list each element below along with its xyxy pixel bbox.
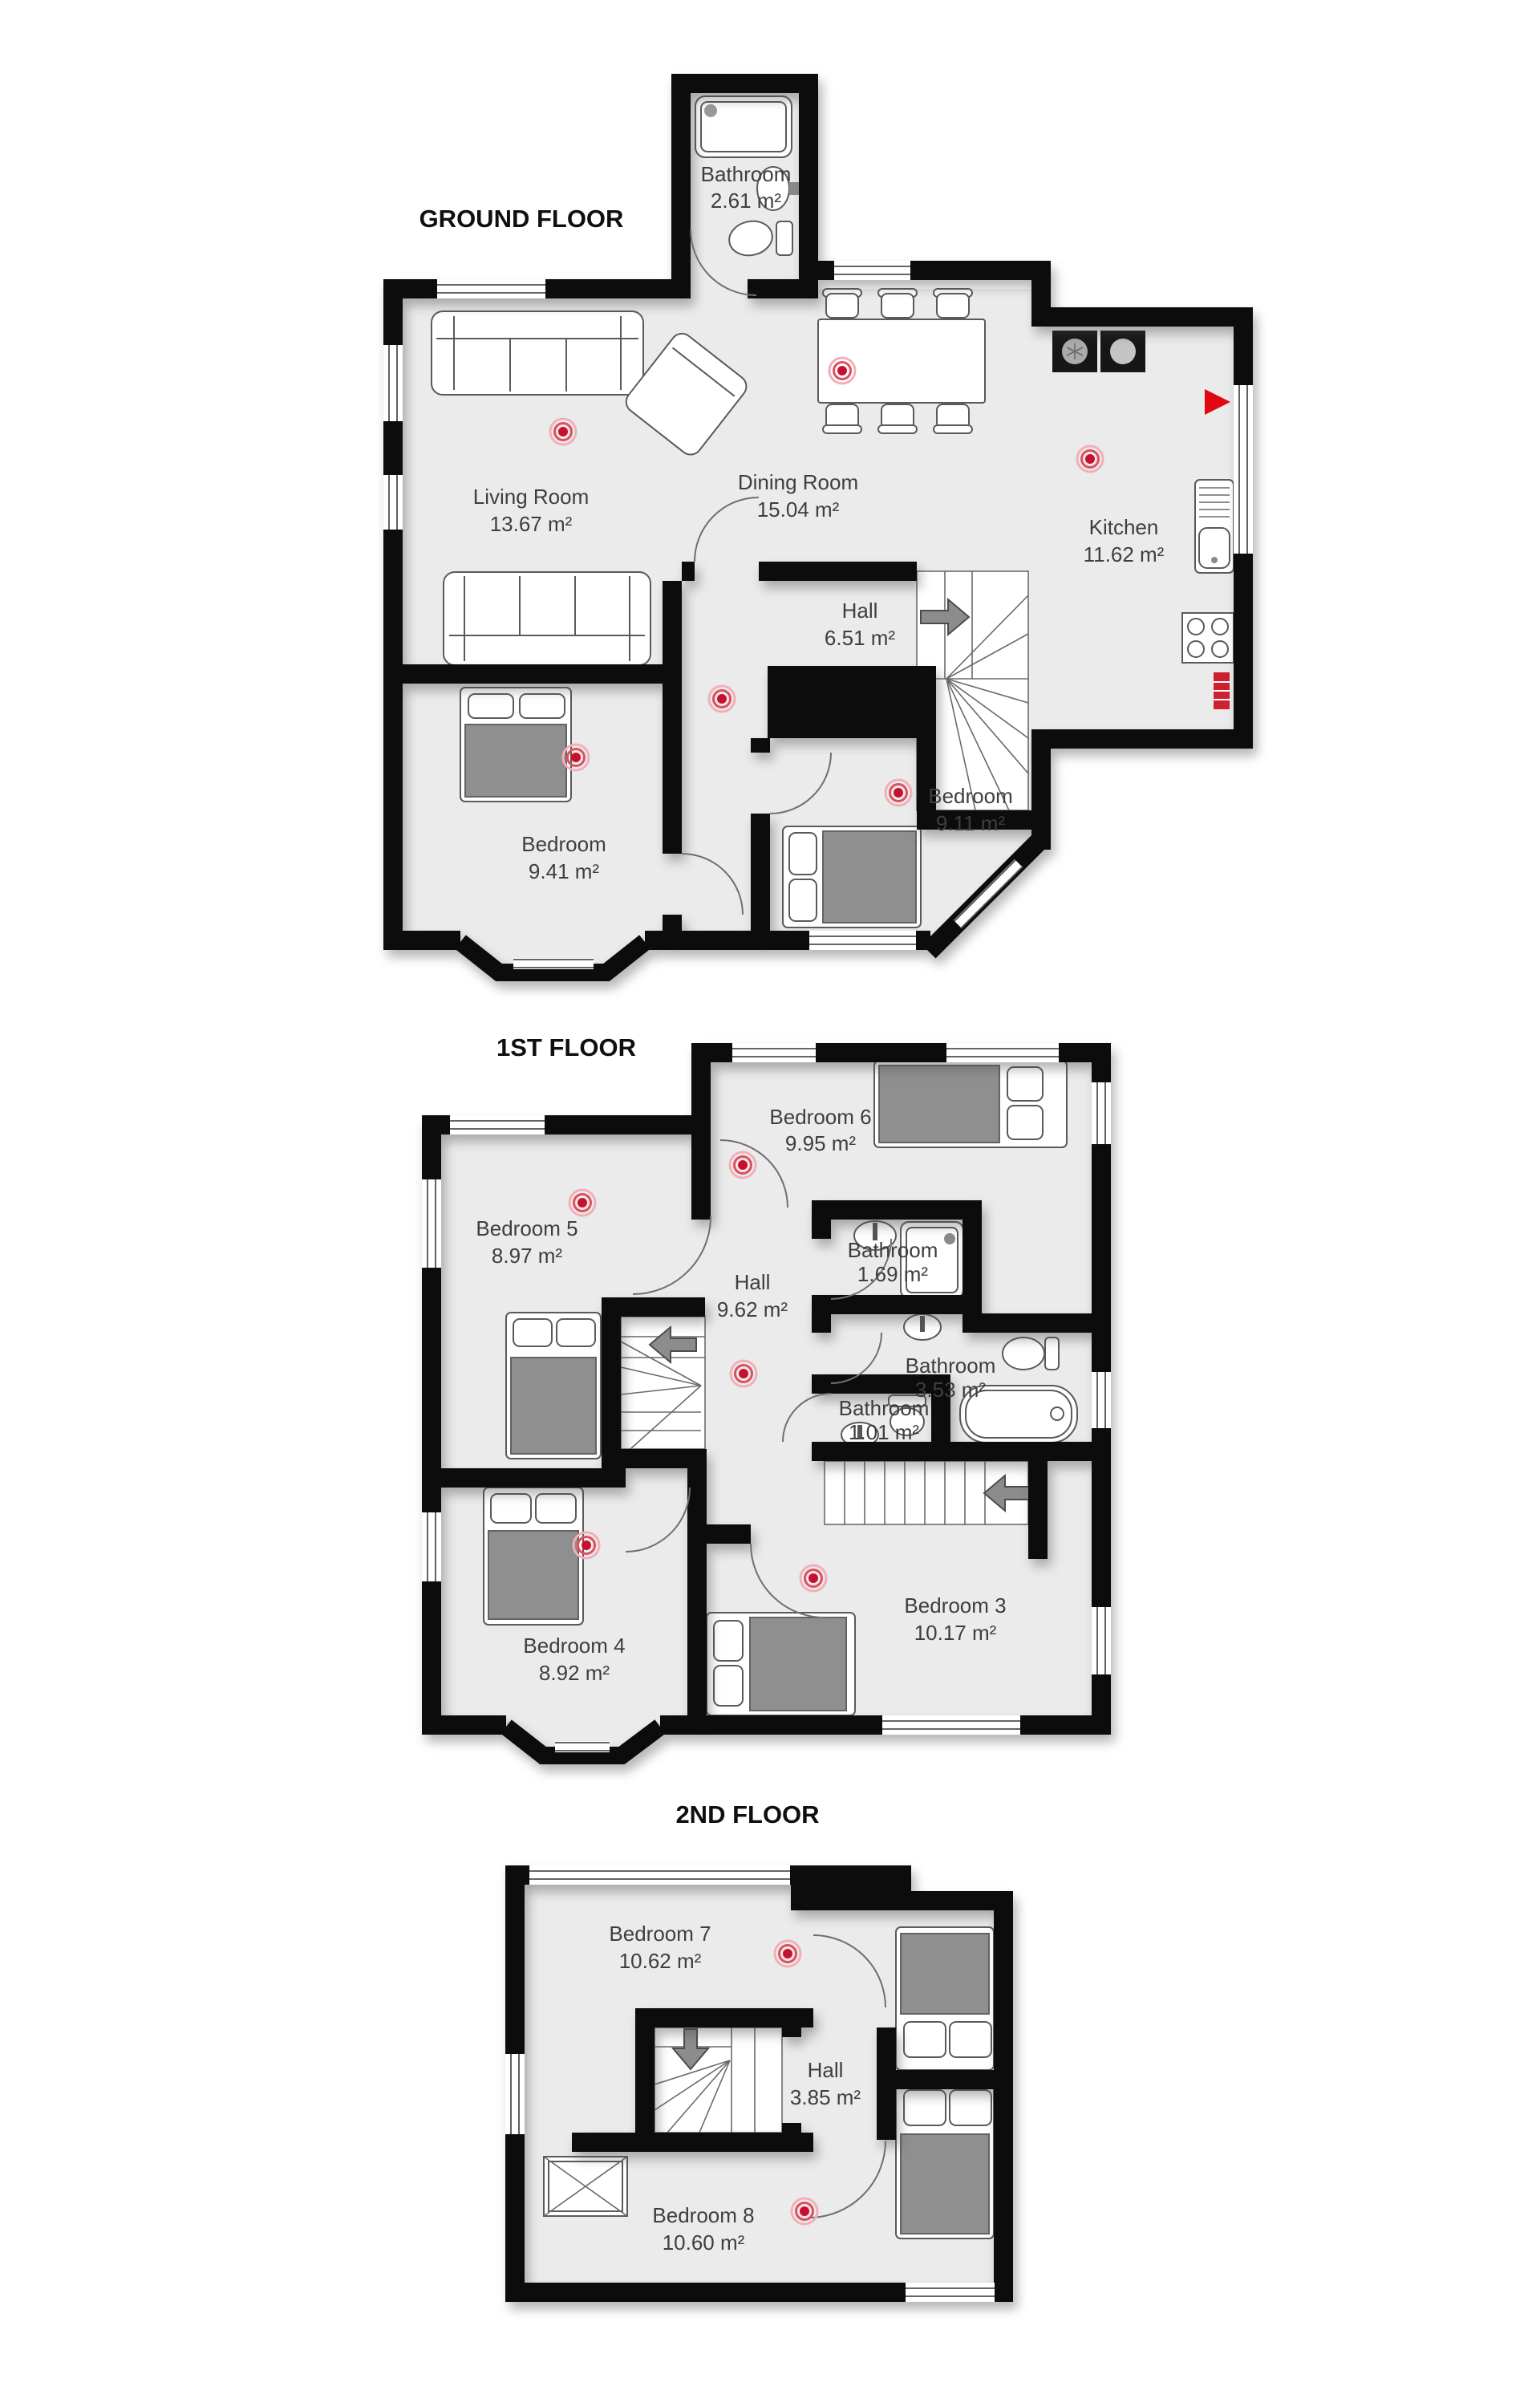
staircase-straight bbox=[825, 1461, 1031, 1524]
bed-right bbox=[783, 826, 921, 927]
bed-8 bbox=[896, 2082, 994, 2239]
skylight-icon bbox=[544, 2157, 627, 2216]
smoke-detector-icon bbox=[829, 358, 855, 384]
window bbox=[1092, 1372, 1111, 1428]
second-floor-title: 2ND FLOOR bbox=[675, 1800, 819, 1829]
window bbox=[422, 1179, 441, 1268]
room-label-bathroom-mid: Bathroom3.53 m² bbox=[906, 1354, 996, 1402]
window bbox=[529, 1865, 790, 1885]
room-label-bathroom-top: Bathroom1.69 m² bbox=[848, 1238, 938, 1286]
room-label-bathroom-small: Bathroom1.01 m² bbox=[839, 1396, 930, 1444]
window bbox=[1092, 1607, 1111, 1674]
window bbox=[437, 279, 545, 298]
bed-left bbox=[460, 688, 571, 802]
first-floor-title: 1ST FLOOR bbox=[496, 1033, 636, 1061]
window bbox=[383, 345, 403, 421]
sofa-bottom bbox=[444, 572, 650, 665]
staircase-winder bbox=[621, 1317, 705, 1449]
window bbox=[450, 1115, 545, 1134]
window bbox=[906, 2283, 995, 2302]
bed-4 bbox=[484, 1488, 583, 1625]
smoke-detector-icon bbox=[569, 1190, 595, 1216]
window bbox=[1234, 385, 1253, 554]
dining-table bbox=[818, 319, 985, 403]
window bbox=[946, 1043, 1059, 1062]
toilet-icon bbox=[1003, 1337, 1044, 1370]
ground-floor-plan: GROUND FLOOR Bathroom2.61 m² Living Room… bbox=[383, 74, 1253, 972]
second-floor-plan: 2ND FLOOR Bedroom 710.62 m² Hall3.85 m² … bbox=[505, 1800, 1013, 2302]
radiator bbox=[1214, 672, 1230, 709]
kitchen-sink-icon bbox=[1195, 480, 1234, 573]
first-floor-plan: 1ST FLOOR Bedroom 69.95 m² Bedroom 58.97… bbox=[422, 1033, 1111, 1756]
smoke-detector-icon bbox=[885, 780, 911, 806]
bed-5 bbox=[506, 1313, 601, 1459]
smoke-detector-icon bbox=[1077, 446, 1103, 472]
window bbox=[383, 475, 403, 530]
floor-plan-page: GROUND FLOOR Bathroom2.61 m² Living Room… bbox=[0, 0, 1540, 2407]
smoke-detector-icon bbox=[563, 745, 589, 770]
smoke-detector-icon bbox=[709, 686, 735, 712]
smoke-detector-icon bbox=[800, 1565, 826, 1591]
ground-floor-title: GROUND FLOOR bbox=[419, 205, 624, 233]
bed-3 bbox=[707, 1613, 855, 1715]
staircase-second bbox=[654, 2027, 782, 2133]
sofa-top bbox=[432, 311, 643, 395]
smoke-detector-icon bbox=[792, 2198, 817, 2224]
smoke-detector-icon bbox=[573, 1532, 599, 1558]
window bbox=[834, 261, 910, 280]
window bbox=[422, 1512, 441, 1581]
window bbox=[1092, 1082, 1111, 1144]
window bbox=[732, 1043, 816, 1062]
window bbox=[505, 2054, 525, 2134]
bay-window-glass bbox=[555, 1743, 610, 1751]
window bbox=[809, 931, 916, 950]
bed-7 bbox=[896, 1927, 994, 2070]
floor-plan-svg: GROUND FLOOR Bathroom2.61 m² Living Room… bbox=[0, 0, 1540, 2407]
stove-icon bbox=[1182, 613, 1234, 663]
bathtub-icon bbox=[695, 96, 792, 157]
bed-6 bbox=[874, 1061, 1067, 1147]
smoke-detector-icon bbox=[730, 1152, 756, 1178]
smoke-detector-icon bbox=[731, 1361, 756, 1386]
smoke-detector-icon bbox=[775, 1941, 800, 1967]
window bbox=[882, 1715, 1020, 1735]
smoke-detector-icon bbox=[550, 419, 576, 444]
bay-window-glass bbox=[513, 960, 594, 968]
